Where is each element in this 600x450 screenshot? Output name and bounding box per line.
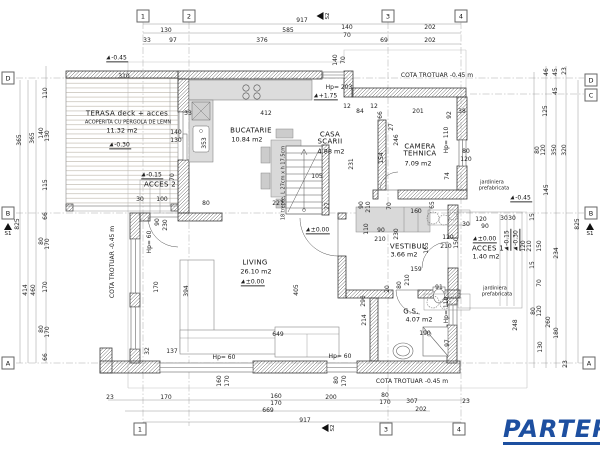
dimension-label: 202 bbox=[424, 38, 435, 44]
note-label: 18 trepte, L 27cm x h 17.5cm bbox=[281, 146, 286, 220]
dimension-label: 170 bbox=[160, 395, 171, 401]
note-label: Hp= 203 bbox=[326, 85, 353, 91]
section-marker-S1: S1 bbox=[4, 223, 12, 237]
elevation-mark: +1.75 bbox=[314, 93, 338, 100]
dimension-label: 200 bbox=[325, 395, 336, 401]
section-arrow-icon bbox=[4, 223, 12, 230]
dimension-label: 70 bbox=[387, 202, 393, 210]
dimension-label: 70 bbox=[537, 279, 543, 287]
dimension-label: 20 bbox=[385, 285, 391, 293]
section-label: S1 bbox=[587, 231, 594, 237]
dimension-label: 12 bbox=[370, 104, 378, 110]
dimension-label: 90 bbox=[481, 224, 489, 230]
grid-bubble-C: C bbox=[585, 89, 598, 102]
dimension-label: 90 bbox=[377, 228, 385, 234]
dimension-label: 669 bbox=[262, 408, 273, 414]
dimension-label: 230 bbox=[394, 228, 400, 239]
grid-bubble-A: A bbox=[2, 357, 15, 370]
dimension-label: 110 bbox=[43, 87, 49, 98]
dimension-label: 65 bbox=[430, 201, 436, 209]
dimension-label: 66 bbox=[43, 212, 49, 220]
room-name: CASA SCARII bbox=[312, 132, 348, 147]
room-name: CAMERA TEHNICA bbox=[393, 144, 447, 159]
grid-bubble-4: 4 bbox=[455, 10, 468, 23]
dimension-label: 296 bbox=[361, 295, 367, 306]
dimension-label: 230 bbox=[163, 219, 169, 230]
dimension-label: 45 bbox=[553, 87, 559, 95]
dimension-label: 120 bbox=[460, 157, 471, 163]
dimension-label: 80 bbox=[202, 201, 210, 207]
dimension-label: 23 bbox=[563, 360, 569, 368]
grid-bubble-B: B bbox=[585, 207, 598, 220]
dimension-label: 353 bbox=[202, 137, 208, 148]
dimension-label: 202 bbox=[415, 407, 426, 413]
dimension-label: 201 bbox=[412, 109, 423, 115]
grid-bubble-B: B bbox=[2, 207, 15, 220]
dimension-label: 214 bbox=[362, 314, 368, 325]
room-name: G.S. bbox=[403, 308, 419, 315]
room-area: 7.09 m2 bbox=[404, 161, 431, 168]
dimension-label: 91 bbox=[435, 285, 443, 291]
dimension-label: 120 bbox=[537, 305, 543, 316]
dimension-label: 190 bbox=[419, 331, 430, 337]
dimension-label: 97 bbox=[445, 339, 451, 347]
dimension-label: 160 bbox=[410, 209, 421, 215]
dimension-label: 140 bbox=[333, 54, 339, 65]
elevation-mark: -0.45 bbox=[510, 195, 532, 202]
room-area: 3.66 m2 bbox=[390, 252, 417, 259]
dimension-label: 394 bbox=[184, 285, 190, 296]
dimension-label: 350 bbox=[552, 144, 558, 155]
section-marker-S2: S2 bbox=[322, 424, 337, 432]
dimension-label: 150 bbox=[537, 240, 543, 251]
dimension-label: 231 bbox=[349, 158, 355, 169]
grid-bubble-4: 4 bbox=[453, 423, 466, 436]
dimension-label: 365 bbox=[30, 132, 36, 143]
dimension-label: 97 bbox=[169, 38, 177, 44]
dimension-label: 140 bbox=[170, 130, 181, 136]
note-label: Hp= 110 bbox=[444, 297, 450, 324]
annotation-layer: 9171305851407020233973766920214070310110… bbox=[0, 0, 600, 450]
dimension-label: 414 bbox=[23, 284, 29, 295]
dimension-label: 248 bbox=[513, 319, 519, 330]
grid-bubble-3: 3 bbox=[380, 423, 393, 436]
dimension-label: 825 bbox=[15, 218, 21, 229]
dimension-label: 90 bbox=[155, 218, 161, 226]
room-area: 11.32 m2 bbox=[106, 128, 137, 135]
dimension-label: 310 bbox=[118, 74, 129, 80]
grid-bubble-A: A bbox=[583, 357, 596, 370]
dimension-label: 210 bbox=[405, 274, 411, 285]
dimension-label: 105 bbox=[311, 174, 322, 180]
dimension-label: 234 bbox=[554, 247, 560, 258]
dimension-label: 170 bbox=[342, 375, 348, 386]
dimension-label: 170 bbox=[43, 281, 49, 292]
room-area: 10.84 m2 bbox=[231, 137, 262, 144]
note-label: COTA TROTUAR -0.45 m bbox=[110, 226, 116, 298]
dimension-label: 80 bbox=[462, 149, 470, 155]
dimension-label: 15 bbox=[530, 213, 536, 221]
note-label: Hp= 60 bbox=[329, 354, 352, 360]
dimension-label: 70 bbox=[341, 56, 347, 64]
dimension-label: 210 bbox=[374, 237, 385, 243]
dimension-label: 69 bbox=[380, 38, 388, 44]
dimension-label: 649 bbox=[272, 332, 283, 338]
dimension-label: 84 bbox=[356, 109, 364, 115]
dimension-label: 33 bbox=[143, 38, 151, 44]
dimension-label: 307 bbox=[406, 399, 417, 405]
dimension-label: 917 bbox=[299, 418, 310, 424]
section-arrow-icon bbox=[322, 424, 329, 432]
dimension-label: 27 bbox=[389, 123, 395, 131]
dimension-label: 159 bbox=[410, 267, 421, 273]
note-label: prefabricata bbox=[479, 186, 509, 191]
room-name: LIVING bbox=[242, 259, 267, 266]
dimension-label: 38 bbox=[458, 109, 466, 115]
section-label: S1 bbox=[5, 231, 12, 237]
elevation-mark: -0.15 bbox=[504, 229, 511, 251]
elevation-mark: ±0.00 bbox=[473, 236, 497, 243]
note-label: prefabricata bbox=[482, 292, 512, 297]
note-label: Hp= 60 bbox=[147, 231, 153, 254]
elevation-mark: -0.45 bbox=[106, 55, 128, 62]
dimension-label: 110 bbox=[364, 223, 370, 234]
elevation-mark: ±0.00 bbox=[241, 279, 265, 286]
room-name: VESTIBUL bbox=[390, 243, 426, 250]
dimension-label: 30 bbox=[508, 216, 516, 222]
dimension-label: 170 bbox=[45, 326, 51, 337]
dimension-label: 30 bbox=[462, 222, 470, 228]
dimension-label: 12 bbox=[343, 104, 351, 110]
elevation-mark: -0.30 bbox=[109, 142, 131, 149]
dimension-label: 100 bbox=[156, 197, 167, 203]
section-marker-S1: S1 bbox=[586, 223, 594, 237]
dimension-label: 70 bbox=[343, 33, 351, 39]
grid-bubble-1: 1 bbox=[134, 423, 147, 436]
dimension-label: 125 bbox=[543, 105, 549, 116]
dimension-label: 74 bbox=[445, 172, 451, 180]
dimension-label: 46 bbox=[544, 68, 550, 76]
dimension-label: 170 bbox=[45, 238, 51, 249]
dimension-label: 23 bbox=[106, 395, 114, 401]
room-name: ACCES 1 bbox=[472, 245, 504, 252]
dimension-label: 210 bbox=[440, 244, 451, 250]
dimension-label: 210 bbox=[366, 201, 372, 212]
dimension-label: 130 bbox=[45, 130, 51, 141]
section-marker-S2: S2 bbox=[317, 12, 332, 20]
dimension-label: 140 bbox=[341, 25, 352, 31]
dimension-label: 80 bbox=[397, 281, 403, 289]
dimension-label: 27 bbox=[325, 202, 331, 210]
dimension-label: 376 bbox=[256, 38, 267, 44]
dimension-label: 130 bbox=[538, 341, 544, 352]
grid-bubble-2: 2 bbox=[183, 10, 196, 23]
section-label: S2 bbox=[330, 425, 336, 432]
dimension-label: 45 bbox=[553, 68, 559, 76]
elevation-mark: -0.15 bbox=[141, 172, 163, 179]
section-label: S2 bbox=[325, 13, 331, 20]
dimension-label: 170 bbox=[154, 281, 160, 292]
dimension-label: 137 bbox=[166, 349, 177, 355]
dimension-label: 170 bbox=[379, 400, 390, 406]
room-name: BUCATARIE bbox=[230, 127, 272, 134]
dimension-label: 66 bbox=[43, 353, 49, 361]
dimension-label: 30 bbox=[500, 216, 508, 222]
dimension-label: 180 bbox=[554, 327, 560, 338]
room-subtitle: ACOPERITA CU PERGOLA DE LEMN bbox=[85, 120, 171, 125]
dimension-label: 585 bbox=[282, 28, 293, 34]
dimension-label: 145 bbox=[544, 184, 550, 195]
dimension-label: 154 bbox=[379, 152, 385, 163]
dimension-label: 15 bbox=[530, 261, 536, 269]
room-name: TERASA deck + acces bbox=[86, 110, 168, 117]
dimension-label: 30 bbox=[136, 197, 144, 203]
dimension-label: 917 bbox=[296, 18, 307, 24]
dimension-label: 365 bbox=[17, 134, 23, 145]
note-label: COTA TROTUAR -0.45 m bbox=[401, 73, 473, 79]
room-area: 1.40 m2 bbox=[472, 254, 499, 261]
dimension-label: 160 bbox=[217, 375, 223, 386]
dimension-label: 405 bbox=[294, 284, 300, 295]
dimension-label: 170 bbox=[225, 375, 231, 386]
dimension-label: 32 bbox=[145, 347, 151, 355]
room-name: ACCES 2 bbox=[144, 181, 176, 188]
dimension-label: 80 bbox=[334, 376, 340, 384]
dimension-label: 150 bbox=[454, 237, 460, 248]
dimension-label: 320 bbox=[562, 144, 568, 155]
floor-plan-page: 9171305851407020233973766920214070310110… bbox=[0, 0, 600, 450]
plan-stage-logo: PARTER bbox=[503, 417, 600, 445]
dimension-label: 260 bbox=[546, 316, 552, 327]
grid-bubble-1: 1 bbox=[137, 10, 150, 23]
dimension-label: 412 bbox=[260, 111, 271, 117]
elevation-mark: -0.30 bbox=[513, 229, 520, 251]
dimension-label: 115 bbox=[43, 179, 49, 190]
grid-bubble-D: D bbox=[585, 74, 598, 87]
dimension-label: 210 bbox=[527, 240, 533, 251]
dimension-label: 33 bbox=[184, 111, 192, 117]
dimension-label: 825 bbox=[575, 218, 581, 229]
dimension-label: 130 bbox=[160, 28, 171, 34]
dimension-label: 23 bbox=[562, 67, 568, 75]
section-arrow-icon bbox=[317, 12, 324, 20]
dimension-label: 23 bbox=[462, 399, 470, 405]
elevation-mark: ±0.00 bbox=[306, 227, 330, 234]
room-area: 4.07 m2 bbox=[405, 317, 432, 324]
dimension-label: 66 bbox=[378, 111, 384, 119]
dimension-label: 92 bbox=[447, 111, 453, 119]
dimension-label: 130 bbox=[170, 138, 181, 144]
room-area: 26.10 m2 bbox=[240, 269, 271, 276]
dimension-label: 460 bbox=[31, 284, 37, 295]
section-arrow-icon bbox=[586, 223, 594, 230]
dimension-label: 202 bbox=[424, 25, 435, 31]
note-label: Hp= 60 bbox=[213, 355, 236, 361]
grid-bubble-D: D bbox=[2, 72, 15, 85]
note-label: COTA TROTUAR -0.45 m bbox=[376, 379, 448, 385]
dimension-label: 120 bbox=[541, 144, 547, 155]
room-area: 4.88 m2 bbox=[317, 149, 344, 156]
grid-bubble-3: 3 bbox=[382, 10, 395, 23]
